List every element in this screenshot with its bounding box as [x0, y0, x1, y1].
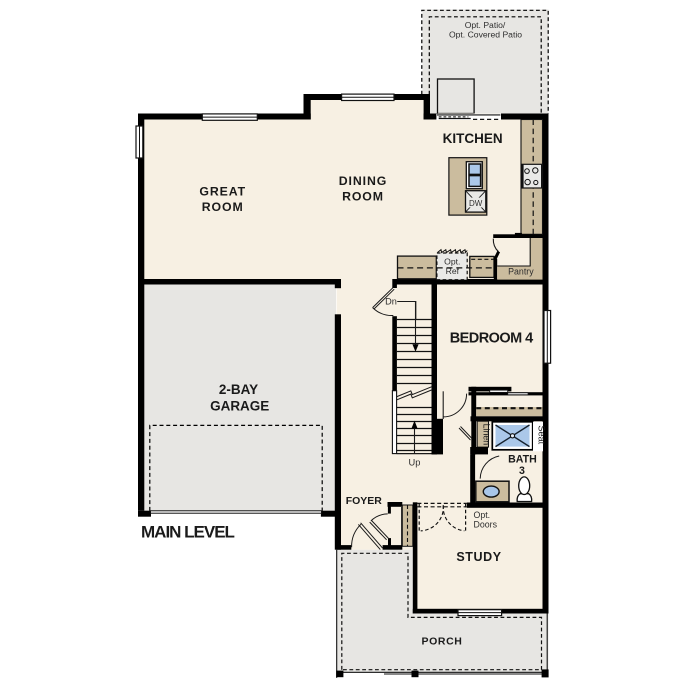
svg-text:Opt. Patio/: Opt. Patio/ [465, 20, 506, 30]
svg-text:3: 3 [519, 465, 525, 477]
svg-text:Opt. Covered Patio: Opt. Covered Patio [449, 30, 522, 40]
svg-text:FOYER: FOYER [346, 495, 383, 507]
svg-text:DW: DW [469, 199, 483, 208]
svg-text:Linen: Linen [481, 424, 491, 446]
svg-text:DINING: DINING [339, 174, 387, 188]
svg-text:PORCH: PORCH [422, 635, 463, 647]
svg-text:Opt.: Opt. [474, 510, 491, 520]
svg-text:BATH: BATH [508, 454, 537, 466]
svg-text:ROOM: ROOM [202, 200, 244, 214]
svg-text:MAIN LEVEL: MAIN LEVEL [141, 523, 235, 542]
svg-text:BEDROOM 4: BEDROOM 4 [450, 331, 533, 347]
svg-text:ROOM: ROOM [342, 190, 384, 204]
svg-text:GREAT: GREAT [199, 185, 246, 199]
svg-text:GARAGE: GARAGE [210, 399, 269, 414]
svg-text:Dn: Dn [385, 296, 397, 306]
svg-text:STUDY: STUDY [456, 550, 501, 564]
svg-text:Seat: Seat [536, 425, 546, 444]
svg-text:Up: Up [409, 457, 421, 467]
svg-text:Pantry: Pantry [508, 267, 534, 277]
svg-text:2-BAY: 2-BAY [219, 382, 258, 397]
svg-text:Doors: Doors [474, 520, 498, 530]
svg-text:KITCHEN: KITCHEN [443, 131, 503, 146]
